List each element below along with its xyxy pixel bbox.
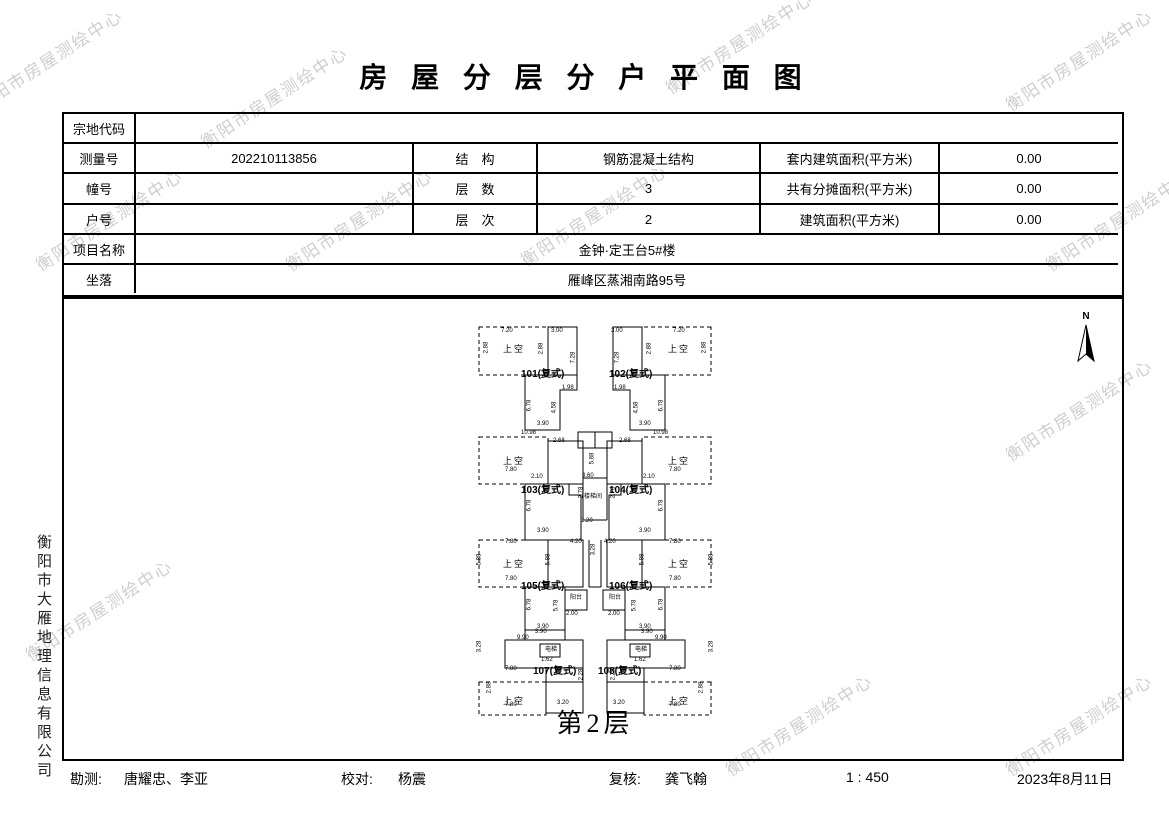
dimension-label: 7.80 bbox=[669, 467, 681, 474]
unit-106: 106(复式) bbox=[609, 577, 652, 592]
dimension-label: 3.60 bbox=[582, 473, 594, 480]
dimension-label: 3.90 bbox=[535, 629, 547, 636]
dimension-label: 3.90 bbox=[639, 421, 651, 428]
dimension-label: 6.78 bbox=[526, 400, 533, 412]
dimension-label: 5.88 bbox=[476, 554, 483, 566]
floors-value: 3 bbox=[538, 174, 761, 205]
dimension-label: 5.78 bbox=[631, 600, 638, 612]
location-label: 坐落 bbox=[64, 265, 136, 293]
dimension-label: 1.98 bbox=[614, 385, 626, 392]
dimension-label: 6.78 bbox=[658, 599, 665, 611]
unit-107: 107(复式) bbox=[533, 662, 576, 677]
floor-caption: 第2层 bbox=[477, 703, 713, 740]
dimension-label: 1.20 bbox=[581, 518, 593, 525]
dimension-label: 10.98 bbox=[521, 430, 536, 437]
surveyor-label: 勘测: bbox=[70, 769, 102, 789]
dimension-label: 2.10 bbox=[531, 474, 543, 481]
structure-value: 钢筋混凝土结构 bbox=[538, 144, 761, 174]
dimension-label: 7.80 bbox=[669, 539, 681, 546]
dimension-label: 7.28 bbox=[570, 352, 577, 364]
void-label: 上空 bbox=[668, 557, 690, 570]
dimension-label: 10.98 bbox=[653, 430, 668, 437]
survey-no-value: 202210113856 bbox=[136, 144, 414, 174]
area-value: 0.00 bbox=[940, 205, 1118, 235]
dimension-label: 2.28 bbox=[578, 669, 585, 681]
void-label: 上空 bbox=[503, 557, 525, 570]
page-title: 房 屋 分 层 分 户 平 面 图 bbox=[0, 56, 1169, 96]
dimension-label: 2.68 bbox=[553, 438, 565, 445]
dimension-label: 7.28 bbox=[614, 352, 621, 364]
dimension-label: 5.78 bbox=[553, 600, 560, 612]
dimension-label: 3.28 bbox=[590, 544, 597, 556]
dimension-label: 2.88 bbox=[483, 342, 490, 354]
reviewer-value: 龚飞翰 bbox=[665, 769, 707, 789]
void-label: 上空 bbox=[503, 342, 525, 355]
inner-area-value: 0.00 bbox=[940, 144, 1118, 174]
shared-area-value: 0.00 bbox=[940, 174, 1118, 205]
level-value: 2 bbox=[538, 205, 761, 235]
location-value: 雁峰区蒸湘南路95号 bbox=[136, 265, 1118, 293]
dimension-label: 2.88 bbox=[538, 343, 545, 355]
balcony-label: 阳台 bbox=[609, 595, 621, 602]
dimension-label: 2.88 bbox=[486, 682, 493, 694]
floors-label: 层 数 bbox=[414, 174, 538, 205]
north-label: N bbox=[1072, 312, 1100, 322]
dimension-label: 7.80 bbox=[669, 666, 681, 673]
floor-plan: 101(复式) 102(复式) 103(复式) 104(复式) 105(复式) … bbox=[477, 324, 713, 724]
stairwell-label: 楼梯间 bbox=[584, 494, 602, 501]
project-name-value: 金钟·定王台5#楼 bbox=[136, 235, 1118, 265]
company-name-vertical: 衡阳市大雁地理信息有限公司 bbox=[33, 534, 54, 781]
structure-label: 结 构 bbox=[414, 144, 538, 174]
dimension-label: 3.00 bbox=[551, 328, 563, 335]
dimension-label: 9.90 bbox=[517, 635, 529, 642]
dimension-label: 5.88 bbox=[545, 554, 552, 566]
building-no-label: 幢号 bbox=[64, 174, 136, 205]
unit-103: 103(复式) bbox=[521, 481, 564, 496]
checker-value: 杨震 bbox=[398, 769, 426, 789]
project-name-label: 项目名称 bbox=[64, 235, 136, 265]
dimension-label: 4.58 bbox=[551, 402, 558, 414]
dimension-label: 2.28 bbox=[610, 669, 617, 681]
elevator-label: 电梯 bbox=[545, 647, 557, 654]
dimension-label: 7.80 bbox=[505, 666, 517, 673]
unit-108: 108(复式) bbox=[598, 662, 641, 677]
dimension-label: 3.00 bbox=[611, 328, 623, 335]
dimension-label: 3.90 bbox=[639, 528, 651, 535]
parcel-code-label: 宗地代码 bbox=[64, 114, 136, 144]
dimension-label: 9.90 bbox=[655, 635, 667, 642]
dimension-label: 2.10 bbox=[643, 474, 655, 481]
parcel-code-value bbox=[136, 114, 1118, 144]
dimension-label: 3.90 bbox=[537, 528, 549, 535]
dimension-label: 3.28 bbox=[476, 641, 483, 653]
survey-no-label: 测量号 bbox=[64, 144, 136, 174]
dimension-label: 6.78 bbox=[658, 400, 665, 412]
dimension-label: 7.80 bbox=[505, 539, 517, 546]
unit-101: 101(复式) bbox=[521, 365, 564, 380]
dimension-label: 2.00 bbox=[608, 611, 620, 618]
dimension-label: 4.58 bbox=[633, 402, 640, 414]
dimension-label: 7.20 bbox=[501, 328, 513, 335]
dimension-label: 1.62 bbox=[541, 657, 553, 664]
dimension-label: 7.20 bbox=[673, 328, 685, 335]
map-scale: 1 : 450 bbox=[846, 769, 889, 785]
floor-plan-lines bbox=[477, 324, 713, 724]
dimension-label: 2.88 bbox=[646, 343, 653, 355]
dimension-label: 3.90 bbox=[537, 421, 549, 428]
inner-area-label: 套内建筑面积(平方米) bbox=[761, 144, 940, 174]
dimension-label: 3.90 bbox=[641, 629, 653, 636]
void-label: 上空 bbox=[668, 454, 690, 467]
checker-label: 校对: bbox=[341, 769, 373, 789]
level-label: 层 次 bbox=[414, 205, 538, 235]
building-no-value bbox=[136, 174, 414, 205]
dimension-label: 2.68 bbox=[619, 438, 631, 445]
north-arrow-icon bbox=[1075, 322, 1097, 366]
unit-102: 102(复式) bbox=[609, 365, 652, 380]
surveyor-value: 唐耀忠、李亚 bbox=[124, 769, 208, 789]
document-page: 衡阳市房屋测绘中心 衡阳市房屋测绘中心 衡阳市房屋测绘中心 衡阳市房屋测绘中心 … bbox=[0, 0, 1169, 827]
unit-no-label: 户号 bbox=[64, 205, 136, 235]
info-table: 宗地代码 测量号 202210113856 结 构 钢筋混凝土结构 套内建筑面积… bbox=[62, 112, 1124, 299]
unit-no-value bbox=[136, 205, 414, 235]
dimension-label: 2.00 bbox=[566, 611, 578, 618]
date: 2023年8月11日 bbox=[1017, 769, 1112, 789]
dimension-label: 1.62 bbox=[634, 657, 646, 664]
area-label: 建筑面积(平方米) bbox=[761, 205, 940, 235]
dimension-label: 2.78 bbox=[578, 487, 585, 499]
dimension-label: 2.78 bbox=[610, 487, 617, 499]
shared-area-label: 共有分摊面积(平方米) bbox=[761, 174, 940, 205]
dimension-label: 7.80 bbox=[505, 576, 517, 583]
dimension-label: 1.98 bbox=[562, 385, 574, 392]
dimension-label: 6.78 bbox=[526, 500, 533, 512]
dimension-label: 6.78 bbox=[658, 500, 665, 512]
dimension-label: 7.80 bbox=[669, 576, 681, 583]
dimension-label: 7.80 bbox=[505, 467, 517, 474]
reviewer-label: 复核: bbox=[609, 769, 641, 789]
void-label: 上空 bbox=[503, 454, 525, 467]
dimension-label: 3.28 bbox=[708, 641, 715, 653]
dimension-label: 5.88 bbox=[589, 453, 596, 465]
dimension-label: 4.20 bbox=[570, 539, 582, 546]
void-label: 上空 bbox=[668, 342, 690, 355]
elevator-label: 电梯 bbox=[635, 647, 647, 654]
dimension-label: 5.88 bbox=[708, 554, 715, 566]
dimension-label: 2.88 bbox=[698, 682, 705, 694]
north-arrow: N bbox=[1072, 312, 1100, 371]
dimension-label: 6.78 bbox=[526, 599, 533, 611]
dimension-label: 2.88 bbox=[701, 342, 708, 354]
dimension-label: 5.88 bbox=[639, 554, 646, 566]
balcony-label: 阳台 bbox=[570, 595, 582, 602]
unit-105: 105(复式) bbox=[521, 577, 564, 592]
dimension-label: 4.20 bbox=[604, 539, 616, 546]
